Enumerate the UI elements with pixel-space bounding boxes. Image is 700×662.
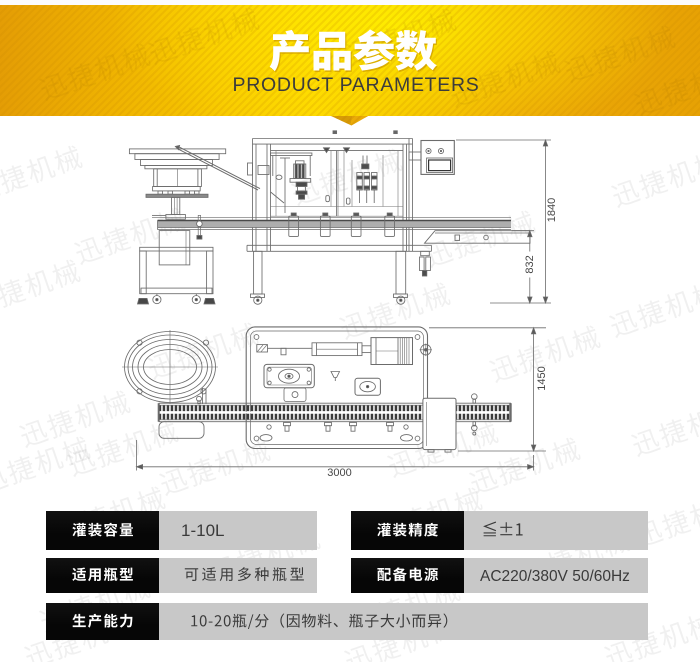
svg-text:1450: 1450	[536, 366, 548, 390]
svg-text:832: 832	[524, 255, 536, 273]
svg-text:3000: 3000	[327, 467, 351, 479]
svg-text:1840: 1840	[546, 198, 558, 222]
